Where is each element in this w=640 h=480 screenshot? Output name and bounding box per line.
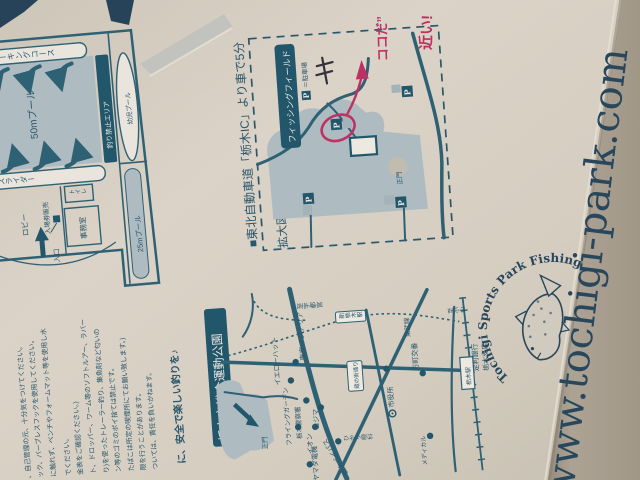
brochure-canvas: 50mプール ウォーキングコース スライダー 釣り禁止エリア 幼児プール 25m… (0, 0, 640, 480)
brochure-photo: 50mプール ウォーキングコース スライダー 釣り禁止エリア 幼児プール 25m… (0, 0, 640, 480)
photo-vignette (0, 0, 640, 480)
